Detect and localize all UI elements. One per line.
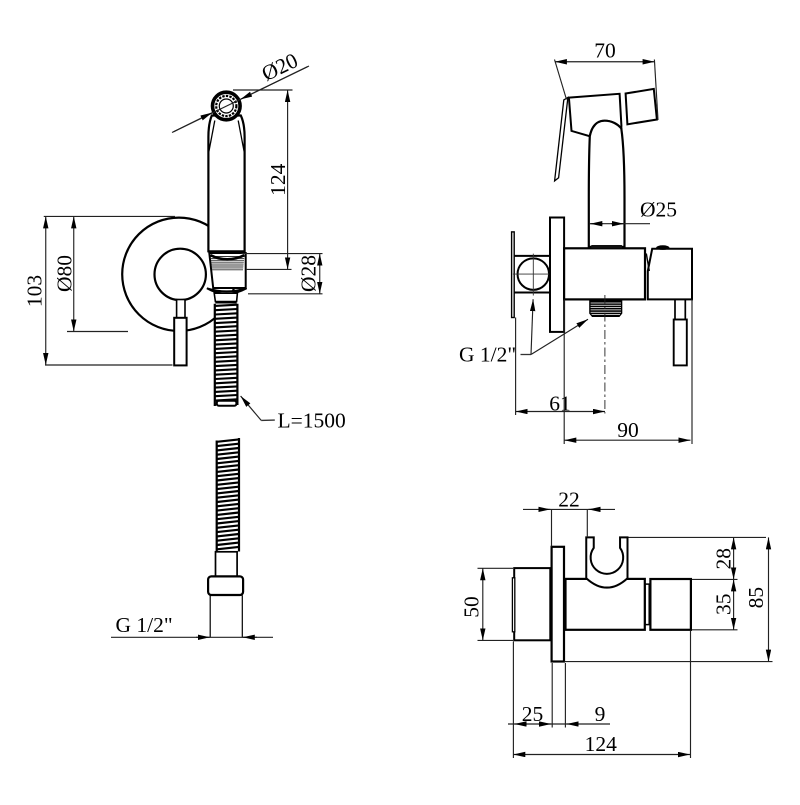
- svg-text:124: 124: [585, 732, 618, 756]
- svg-text:9: 9: [595, 702, 606, 726]
- svg-text:G 1/2": G 1/2": [459, 343, 516, 367]
- svg-text:25: 25: [522, 702, 544, 726]
- svg-text:G 1/2": G 1/2": [116, 613, 173, 637]
- svg-text:Ø28: Ø28: [297, 255, 321, 292]
- svg-text:70: 70: [594, 38, 616, 62]
- svg-text:35: 35: [711, 594, 735, 616]
- svg-text:124: 124: [266, 163, 290, 196]
- svg-text:Ø25: Ø25: [640, 198, 677, 222]
- svg-text:L=1500: L=1500: [278, 409, 346, 433]
- svg-text:28: 28: [711, 548, 735, 570]
- svg-text:103: 103: [22, 275, 46, 307]
- svg-text:90: 90: [617, 418, 639, 442]
- svg-text:61: 61: [549, 392, 571, 416]
- svg-text:Ø80: Ø80: [52, 255, 76, 292]
- svg-text:50: 50: [460, 596, 484, 618]
- svg-text:85: 85: [744, 587, 768, 609]
- svg-text:22: 22: [558, 488, 580, 512]
